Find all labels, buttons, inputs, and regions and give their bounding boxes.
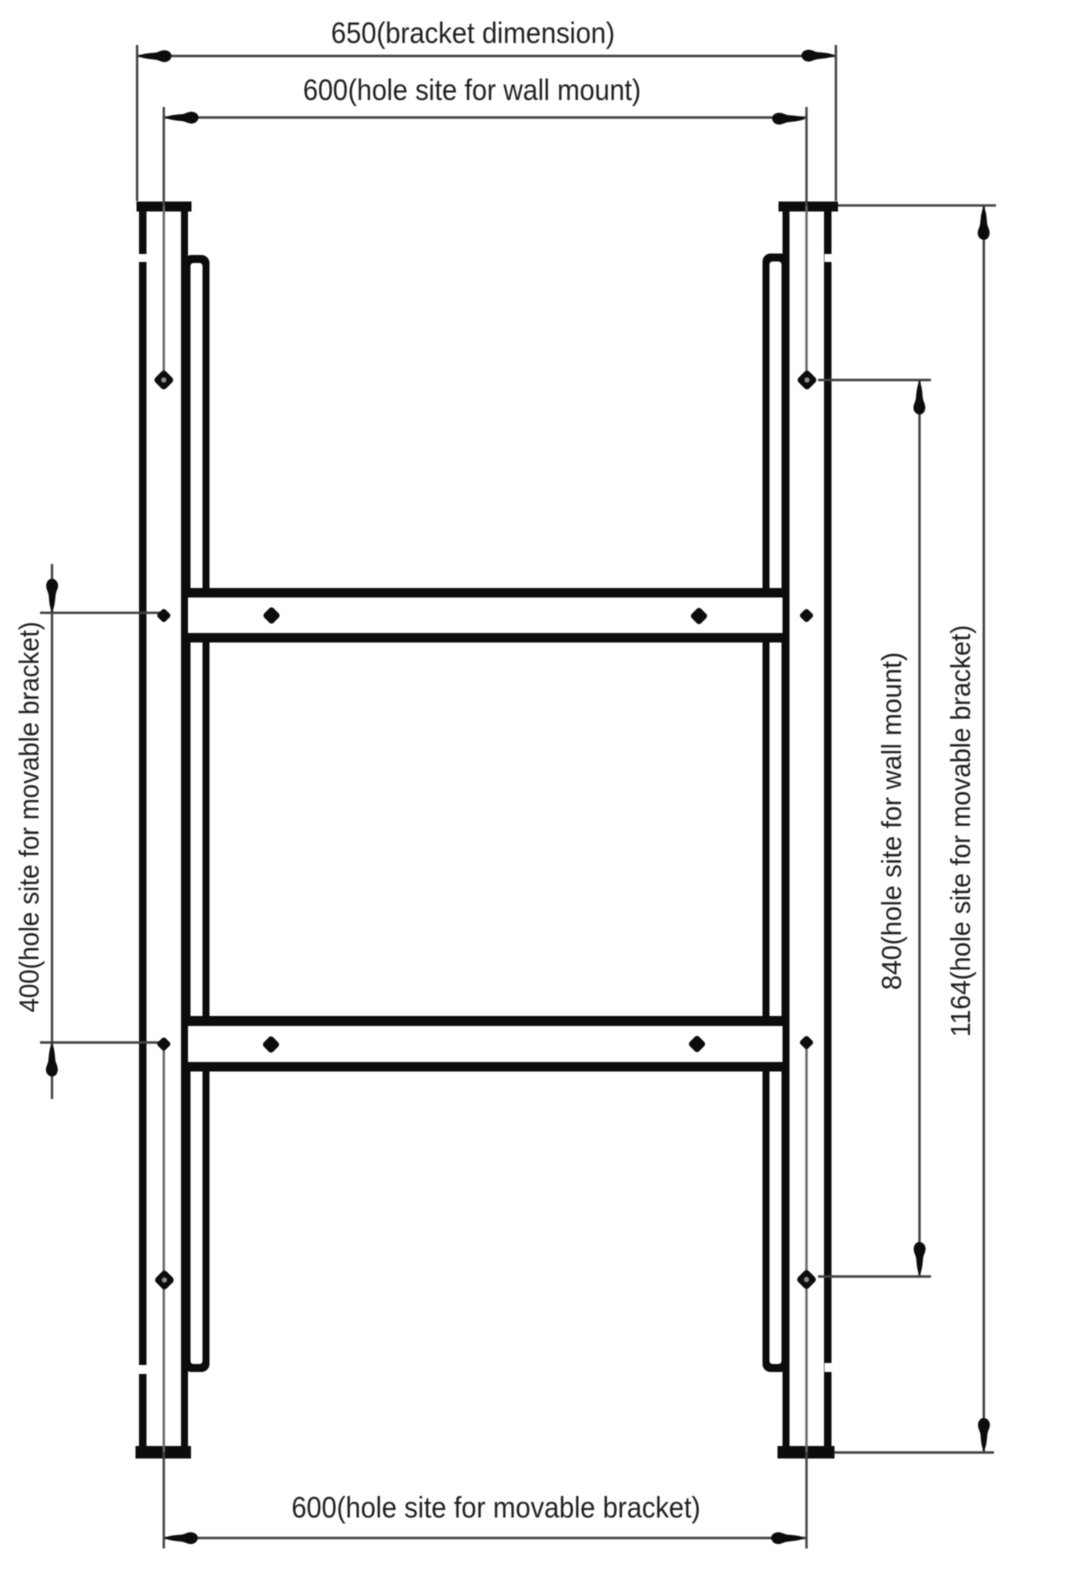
svg-text:600(hole site for movable brac: 600(hole site for movable bracket) <box>292 1492 701 1525</box>
svg-text:400(hole site for movable brac: 400(hole site for movable bracket) <box>14 622 45 1013</box>
svg-text:650(bracket dimension): 650(bracket dimension) <box>331 17 615 50</box>
svg-text:600(hole site for wall mount): 600(hole site for wall mount) <box>303 74 641 107</box>
svg-text:840(hole site for wall mount): 840(hole site for wall mount) <box>876 652 907 990</box>
svg-text:1164(hole site for movable bra: 1164(hole site for movable bracket) <box>945 625 976 1037</box>
